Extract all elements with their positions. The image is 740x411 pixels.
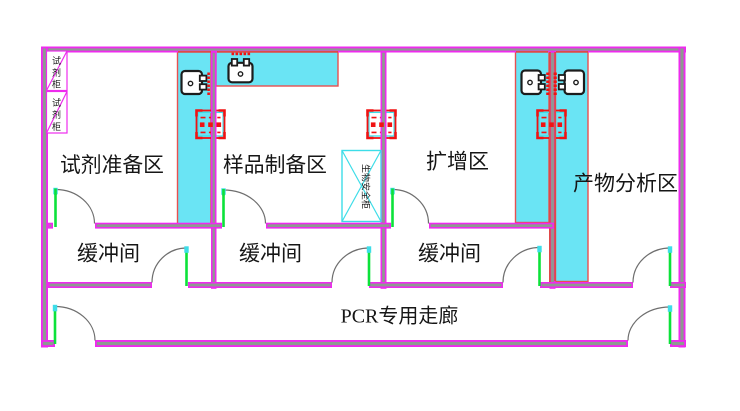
svg-text:缓冲间: 缓冲间 xyxy=(239,242,302,266)
svg-text:扩增区: 扩增区 xyxy=(426,150,489,174)
svg-text:柜: 柜 xyxy=(52,121,61,132)
svg-text:试剂准备区: 试剂准备区 xyxy=(60,154,164,177)
svg-text:缓冲间: 缓冲间 xyxy=(418,242,481,266)
svg-text:试: 试 xyxy=(52,55,61,66)
svg-text:PCR专用走廊: PCR专用走廊 xyxy=(341,305,459,328)
svg-text:产物分析区: 产物分析区 xyxy=(573,172,678,196)
svg-text:缓冲间: 缓冲间 xyxy=(77,242,140,266)
svg-text:柜: 柜 xyxy=(52,79,61,90)
svg-text:剂: 剂 xyxy=(52,109,61,120)
svg-text:生物安全柜: 生物安全柜 xyxy=(361,164,372,209)
svg-text:样品制备区: 样品制备区 xyxy=(223,154,327,177)
svg-text:剂: 剂 xyxy=(52,67,61,78)
svg-text:试: 试 xyxy=(52,97,61,108)
